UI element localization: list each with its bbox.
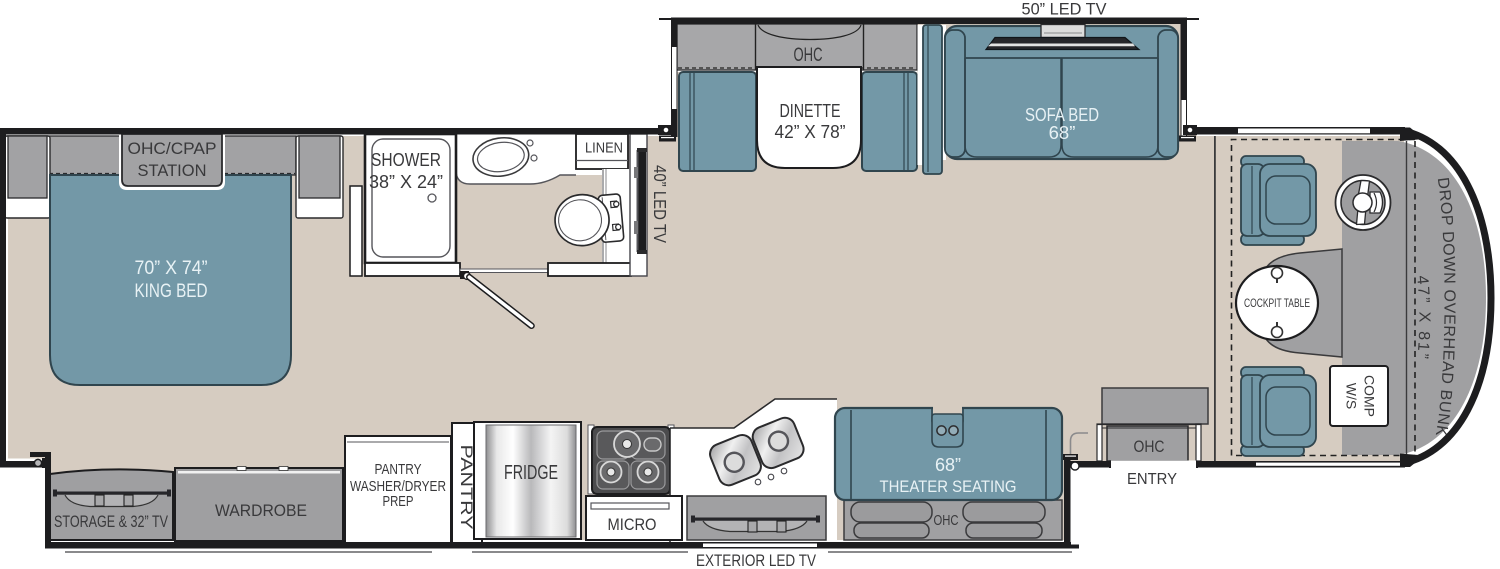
svg-text:LINEN: LINEN	[585, 141, 623, 157]
svg-text:40” LED TV: 40” LED TV	[650, 165, 670, 243]
svg-text:KING BED: KING BED	[135, 281, 208, 302]
svg-text:38” X 24”: 38” X 24”	[369, 171, 443, 192]
svg-text:OHC: OHC	[1134, 437, 1165, 456]
svg-text:47” X 81”: 47” X 81”	[1413, 275, 1432, 361]
svg-text:THEATER SEATING: THEATER SEATING	[880, 477, 1017, 496]
svg-text:WARDROBE: WARDROBE	[215, 502, 307, 520]
svg-text:DINETTE: DINETTE	[780, 101, 841, 121]
svg-text:42” X 78”: 42” X 78”	[775, 122, 846, 142]
svg-text:PANTRY: PANTRY	[457, 445, 475, 530]
svg-text:COMP: COMP	[1361, 375, 1377, 417]
svg-text:W/S: W/S	[1343, 383, 1359, 409]
svg-text:FRIDGE: FRIDGE	[504, 462, 558, 484]
svg-text:COCKPIT TABLE: COCKPIT TABLE	[1244, 298, 1310, 310]
svg-text:68”: 68”	[1049, 122, 1076, 143]
svg-text:50” LED TV: 50” LED TV	[1022, 1, 1107, 19]
svg-text:STATION: STATION	[138, 161, 207, 180]
svg-text:STORAGE & 32” TV: STORAGE & 32” TV	[54, 513, 168, 531]
svg-text:ENTRY: ENTRY	[1127, 471, 1177, 488]
svg-text:PANTRY: PANTRY	[375, 461, 422, 478]
svg-text:OHC/CPAP: OHC/CPAP	[128, 139, 217, 158]
svg-text:OHC: OHC	[794, 45, 823, 66]
svg-text:68”: 68”	[935, 455, 961, 475]
svg-text:70” X 74”: 70” X 74”	[135, 258, 208, 279]
svg-text:MICRO: MICRO	[608, 516, 657, 534]
svg-text:PREP: PREP	[383, 493, 414, 510]
svg-text:SHOWER: SHOWER	[371, 149, 441, 170]
svg-text:EXTERIOR LED TV: EXTERIOR LED TV	[696, 552, 816, 569]
svg-text:OHC: OHC	[934, 512, 959, 529]
